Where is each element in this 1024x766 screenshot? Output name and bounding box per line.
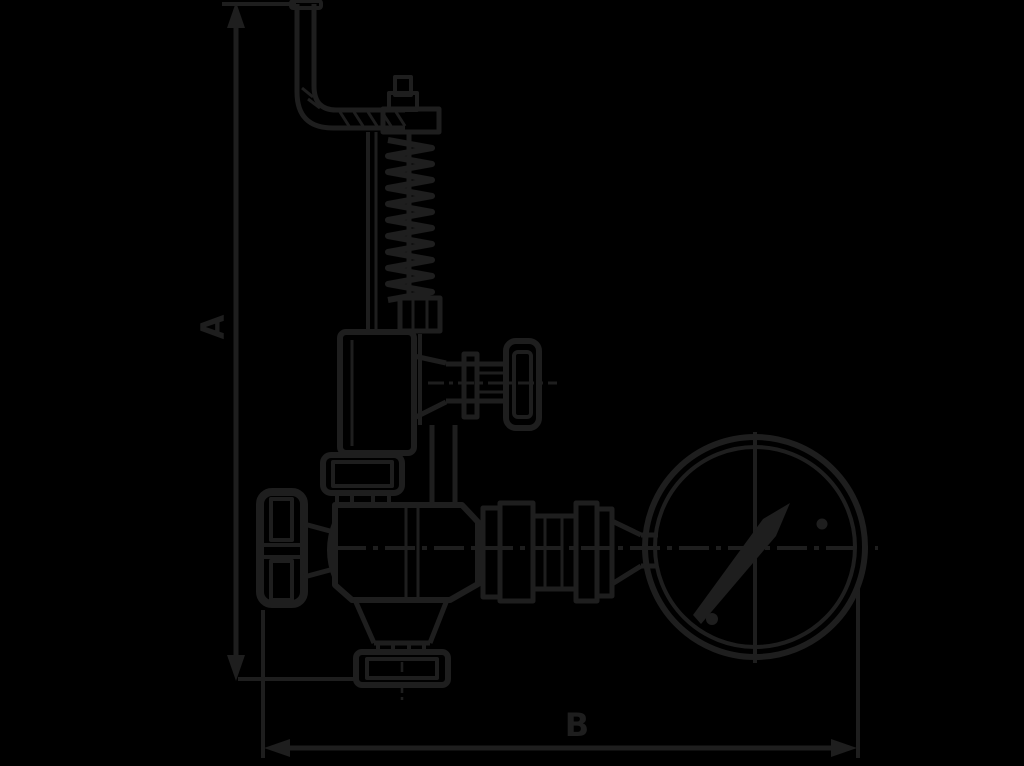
technical-drawing-canvas: A B: [0, 0, 1024, 766]
gauge-screw-upper-icon: [817, 519, 828, 530]
body-taper-right: [430, 600, 447, 643]
dimension-label-a: A: [194, 314, 232, 339]
fitting-nut-2: [576, 503, 597, 601]
bonnet-flange: [323, 455, 402, 505]
fitting-ring-1: [483, 508, 500, 597]
spring-column: [368, 77, 440, 332]
reducer-bottom: [612, 566, 641, 584]
reducer-top: [612, 521, 641, 535]
dimension-line-b: B: [263, 584, 858, 758]
drawing-root: A B: [194, 1, 878, 758]
gauge-needle: [693, 503, 790, 624]
dimension-b-arrow-right-icon: [831, 739, 857, 757]
spring-bonnet: [340, 332, 420, 453]
valve-body: [330, 505, 479, 654]
dimension-b-arrow-left-icon: [264, 739, 290, 757]
inlet-handwheel-spoke-top: [271, 499, 292, 540]
fitting-nut-1: [500, 503, 533, 601]
bonnet-flange-inner: [333, 462, 392, 486]
gauge-connection-fittings: [483, 503, 658, 601]
gauge-screw-lower-icon: [706, 613, 718, 625]
inlet-handwheel: [260, 492, 330, 604]
body-taper-left: [355, 600, 374, 643]
dimension-label-b: B: [565, 706, 589, 744]
fitting-ring-2: [597, 509, 612, 596]
side-branch-valve: [414, 341, 557, 503]
adjuster-nut: [400, 298, 440, 331]
fitting-body: [533, 516, 576, 589]
inlet-handwheel-spoke-bottom: [271, 561, 292, 600]
outlet-flange: [356, 652, 448, 700]
inlet-handwheel-rim: [260, 492, 304, 604]
